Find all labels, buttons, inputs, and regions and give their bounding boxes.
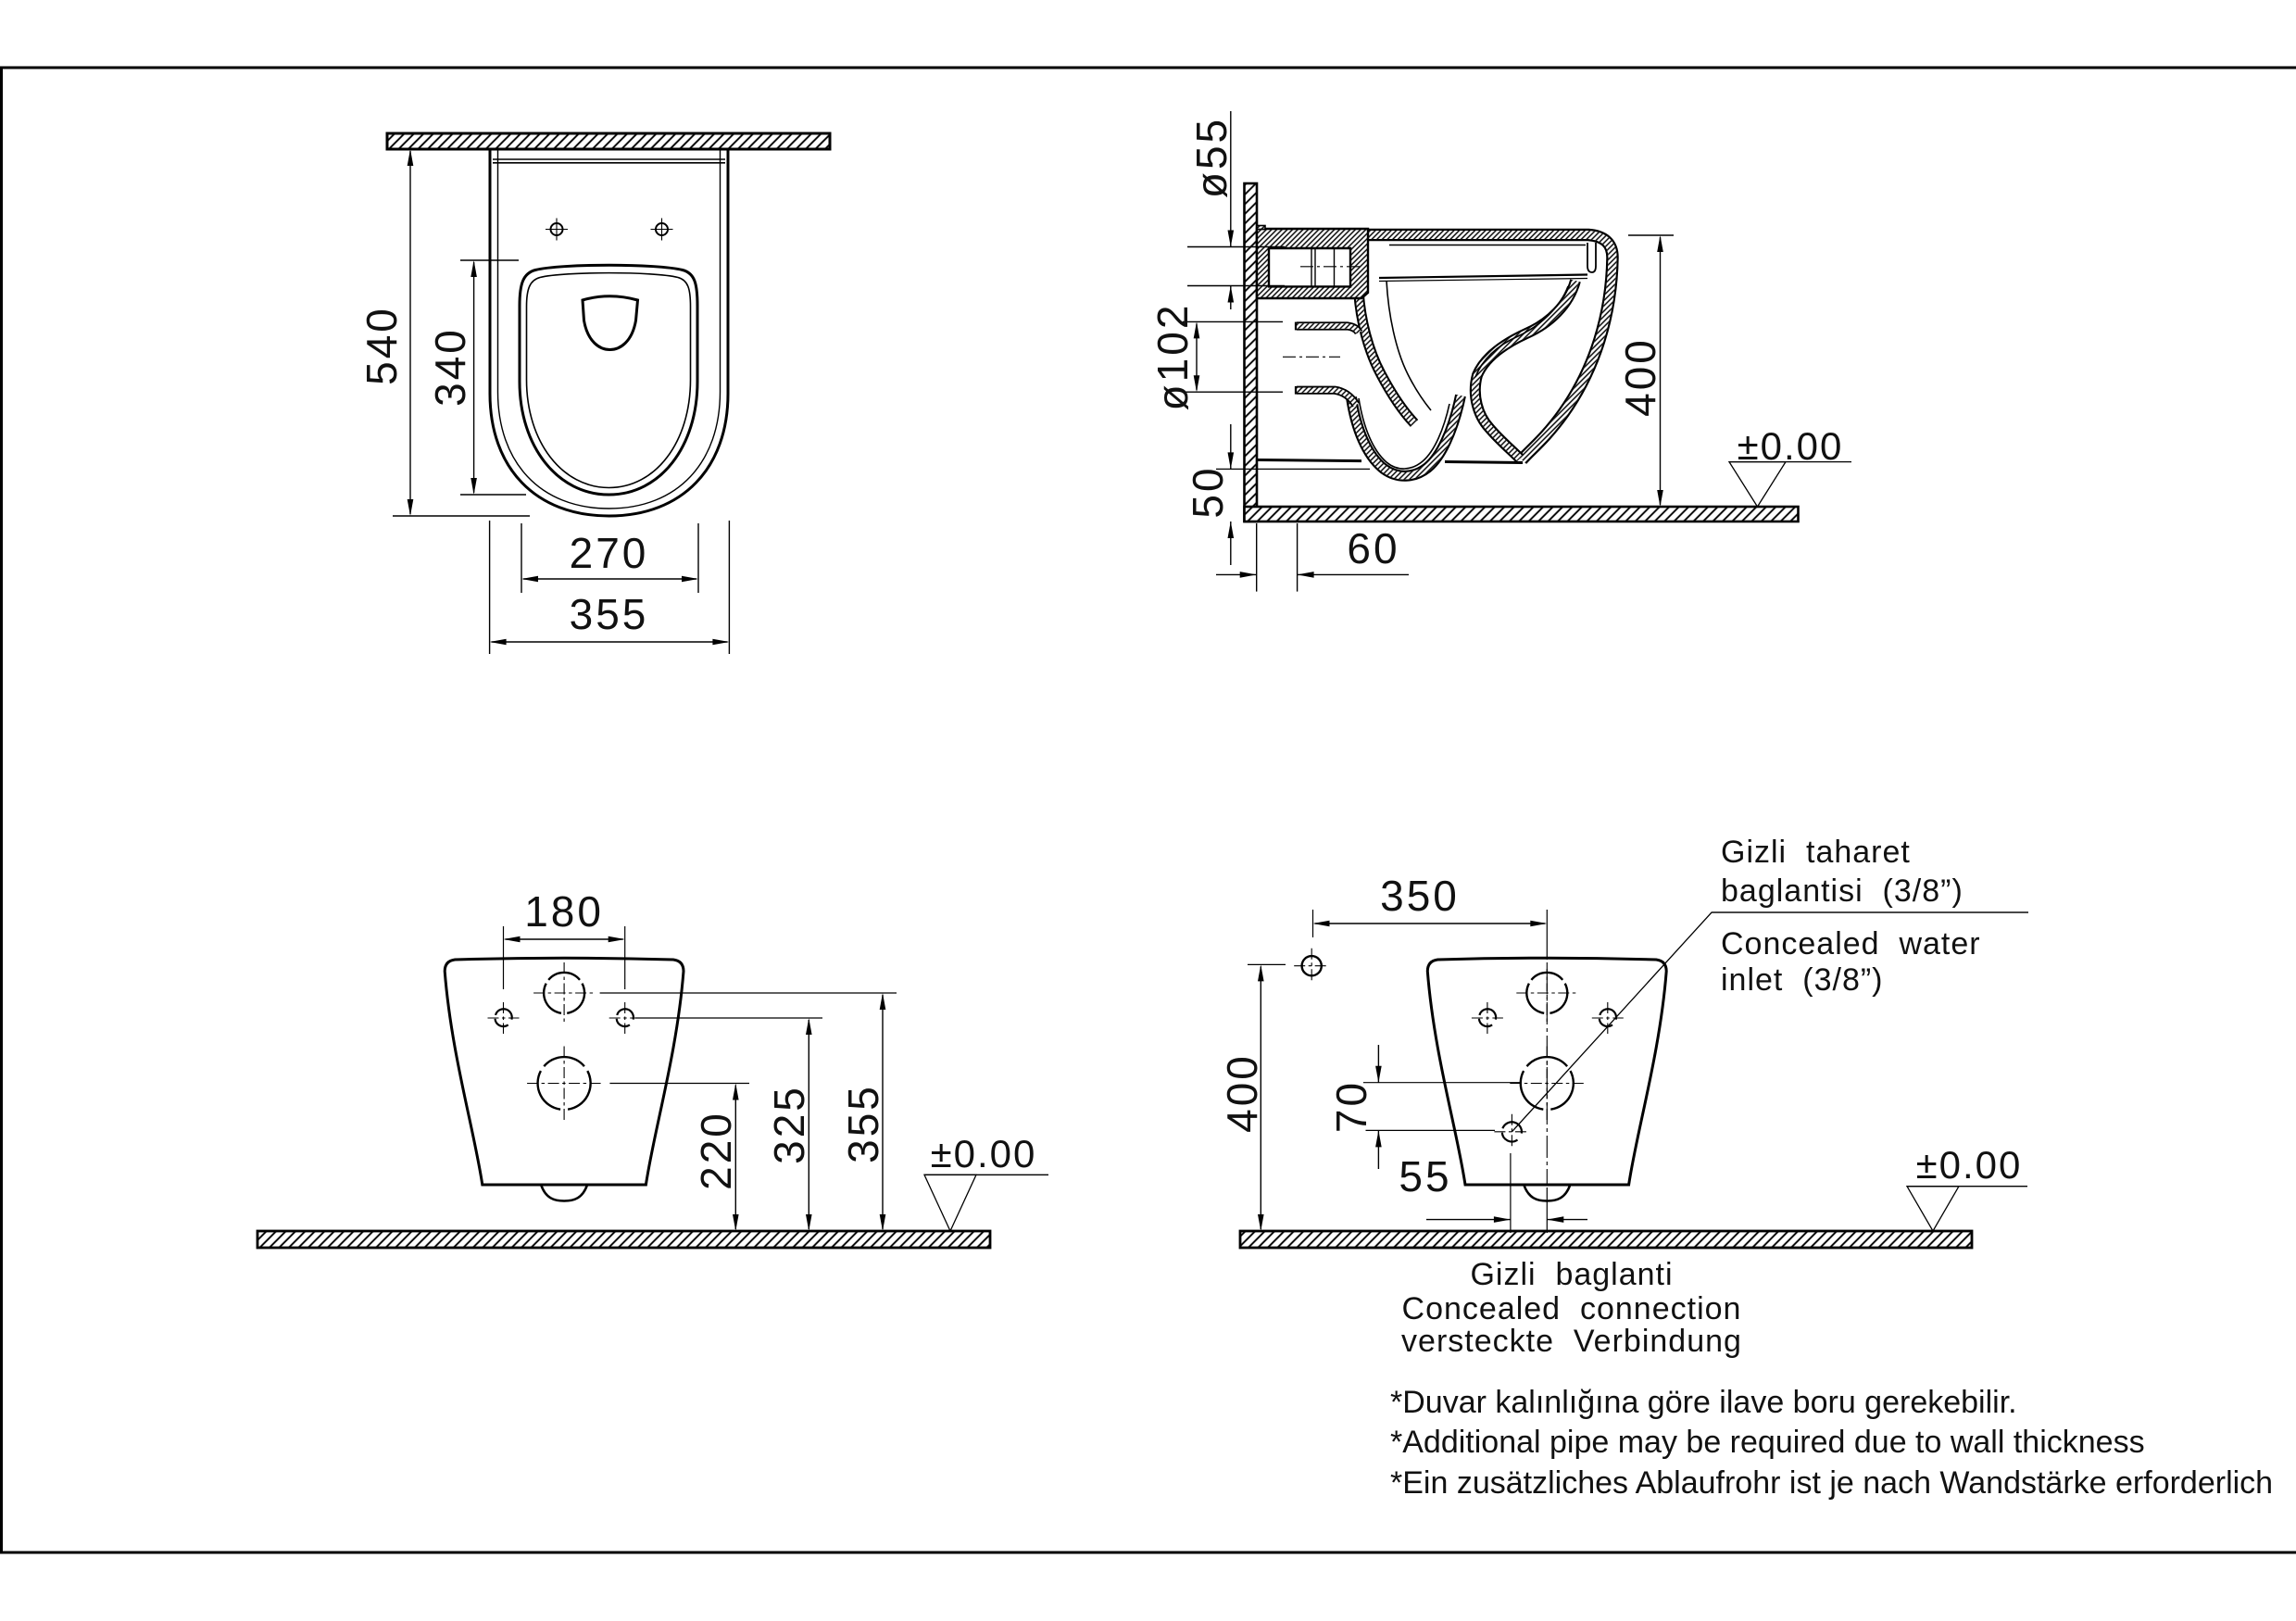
svg-text:540: 540 xyxy=(358,306,406,385)
svg-text:355: 355 xyxy=(570,590,649,638)
svg-text:180: 180 xyxy=(524,887,604,936)
svg-text:325: 325 xyxy=(765,1085,813,1164)
svg-text:400: 400 xyxy=(1218,1053,1266,1133)
svg-text:60: 60 xyxy=(1347,524,1399,572)
svg-text:*Additional pipe may be requir: *Additional pipe may be required due to … xyxy=(1390,1425,2145,1460)
svg-text:Concealed water: Concealed water xyxy=(1721,926,1981,961)
svg-text:270: 270 xyxy=(570,529,649,577)
svg-text:±0.00: ±0.00 xyxy=(1916,1143,2023,1187)
svg-text:baglantisi (3/8”): baglantisi (3/8”) xyxy=(1721,873,1964,909)
svg-text:400: 400 xyxy=(1616,337,1664,417)
svg-text:Gizli baglanti: Gizli baglanti xyxy=(1470,1257,1673,1292)
svg-text:ø55: ø55 xyxy=(1187,117,1236,198)
svg-text:355: 355 xyxy=(839,1084,887,1163)
svg-text:340: 340 xyxy=(426,327,474,407)
svg-text:Concealed connection: Concealed connection xyxy=(1402,1291,1742,1326)
svg-text:Gizli taharet: Gizli taharet xyxy=(1721,835,1911,870)
svg-text:ø102: ø102 xyxy=(1148,303,1197,411)
svg-text:50: 50 xyxy=(1184,465,1232,518)
svg-text:versteckte Verbindung: versteckte Verbindung xyxy=(1401,1324,1742,1359)
svg-text:*Duvar kalınlığına göre ilave: *Duvar kalınlığına göre ilave boru gerek… xyxy=(1390,1385,2017,1420)
svg-text:±0.00: ±0.00 xyxy=(931,1132,1037,1175)
svg-text:inlet (3/8”): inlet (3/8”) xyxy=(1721,962,1884,998)
svg-text:*Ein zusätzliches Ablaufrohr i: *Ein zusätzliches Ablaufrohr ist je nach… xyxy=(1390,1465,2273,1501)
svg-text:350: 350 xyxy=(1380,872,1460,920)
svg-text:220: 220 xyxy=(692,1111,740,1190)
svg-text:70: 70 xyxy=(1327,1080,1375,1133)
svg-text:55: 55 xyxy=(1399,1152,1451,1200)
